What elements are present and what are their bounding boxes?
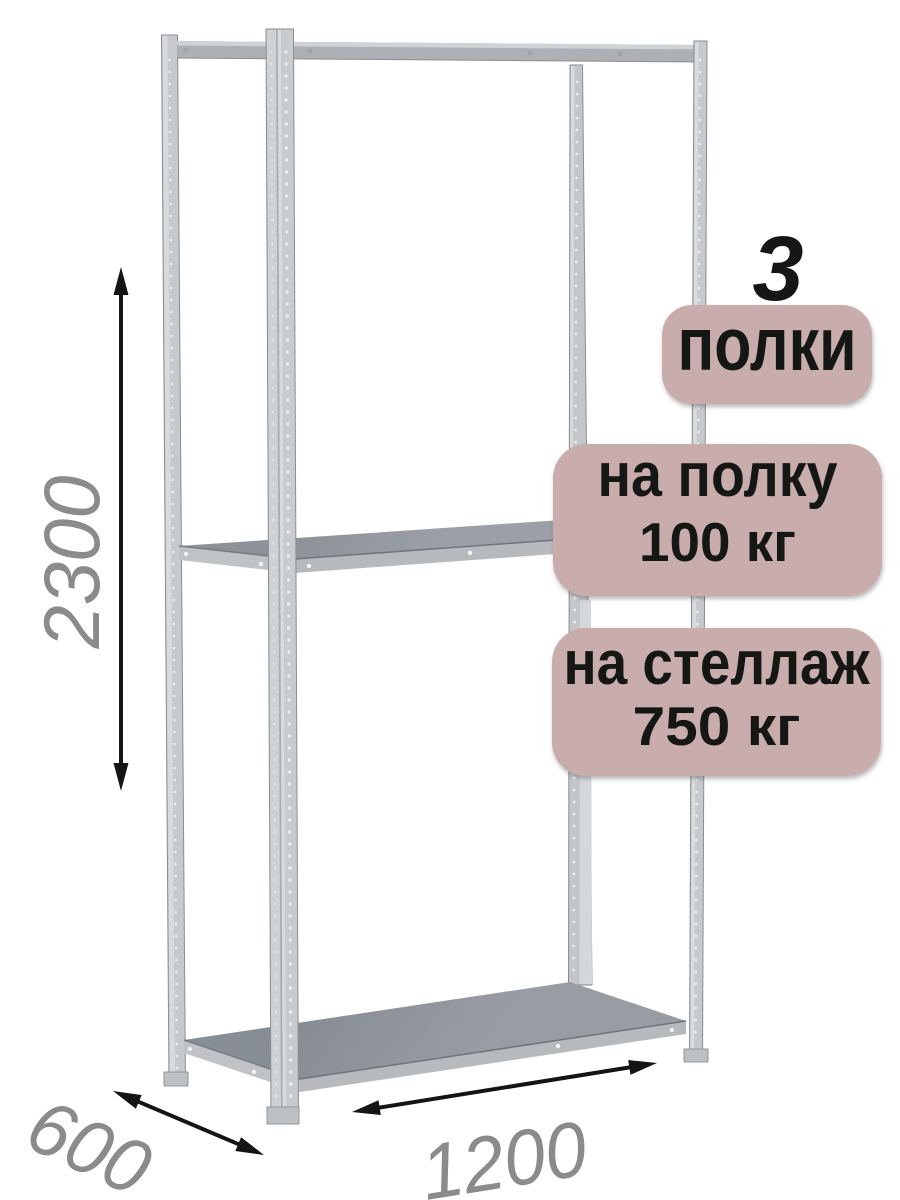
svg-text:100 кг: 100 кг (639, 511, 796, 573)
svg-text:750 кг: 750 кг (633, 695, 801, 757)
svg-text:2300: 2300 (27, 475, 116, 649)
svg-text:на полку: на полку (598, 441, 838, 510)
svg-text:на стеллаж: на стеллаж (564, 629, 871, 698)
svg-text:3: 3 (752, 218, 803, 320)
